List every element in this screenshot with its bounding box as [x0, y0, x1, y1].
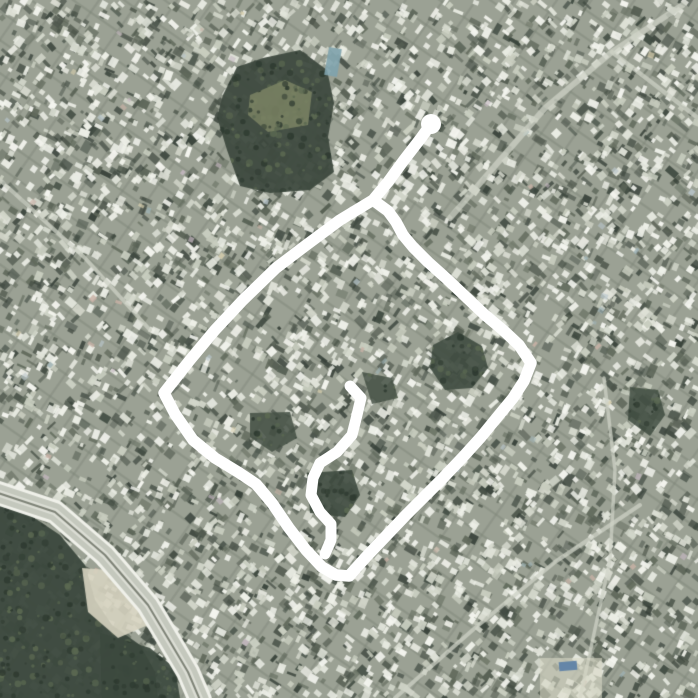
route-annotation-layer: [0, 0, 698, 698]
satellite-map-view: [0, 0, 698, 698]
route-annotation-hook: [311, 386, 361, 554]
route-annotation-outline: [164, 124, 531, 576]
route-start-blob: [421, 114, 441, 134]
